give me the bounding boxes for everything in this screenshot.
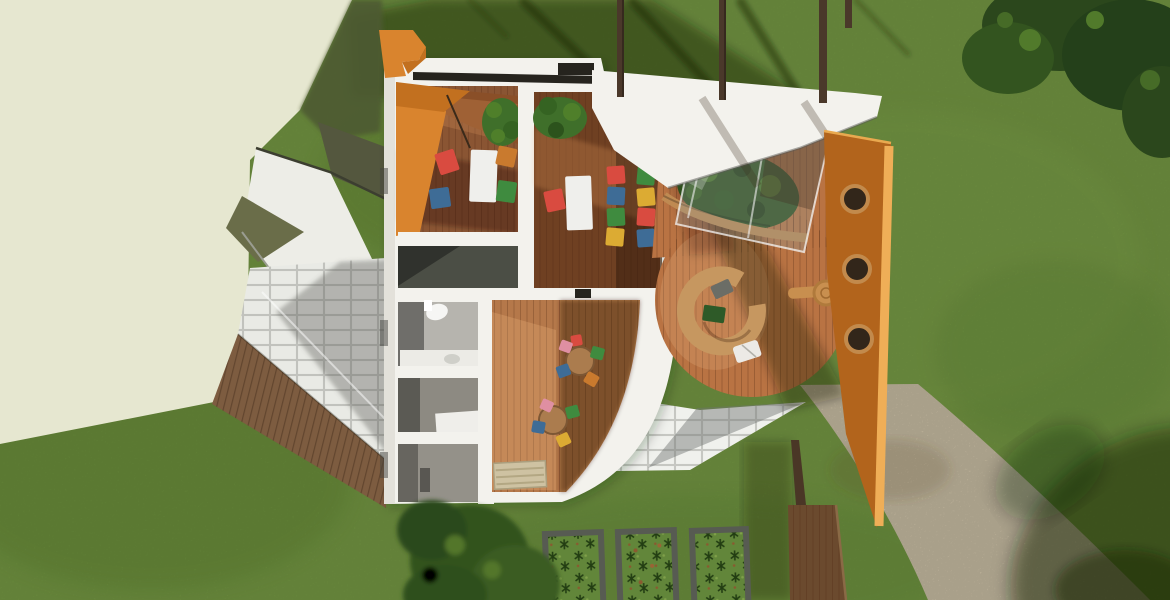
- west-wall-face: [384, 58, 395, 504]
- kids-chair: [531, 420, 546, 434]
- desk: [469, 150, 498, 203]
- cube-stool: [636, 187, 656, 207]
- sink: [444, 354, 460, 364]
- room-a: [396, 82, 522, 236]
- garden-bed: [615, 527, 680, 600]
- chair: [429, 187, 452, 210]
- mast-pole: [845, 0, 852, 28]
- interior-wall: [398, 232, 520, 248]
- chair: [495, 145, 518, 168]
- activity-table: [565, 176, 593, 231]
- toilet-tank: [424, 300, 432, 311]
- roof-hatch-slot: [558, 63, 594, 75]
- cube-stool: [605, 227, 625, 247]
- chair: [496, 180, 518, 203]
- door-slot: [575, 289, 591, 298]
- cube-stool: [607, 187, 626, 206]
- corridor-wall: [478, 298, 494, 504]
- fence-shadow: [744, 442, 792, 600]
- cube-stool: [636, 207, 655, 226]
- aerial-render: [0, 0, 1170, 600]
- vanity-counter: [400, 350, 480, 368]
- garden-bed: [689, 526, 752, 600]
- garden-beds: [542, 526, 752, 600]
- cube-stool: [606, 165, 625, 184]
- cube-stool: [636, 228, 655, 247]
- doormat: [493, 461, 546, 490]
- mast-pole: [819, 0, 827, 103]
- cushion: [702, 305, 726, 324]
- cube-stool: [607, 208, 626, 227]
